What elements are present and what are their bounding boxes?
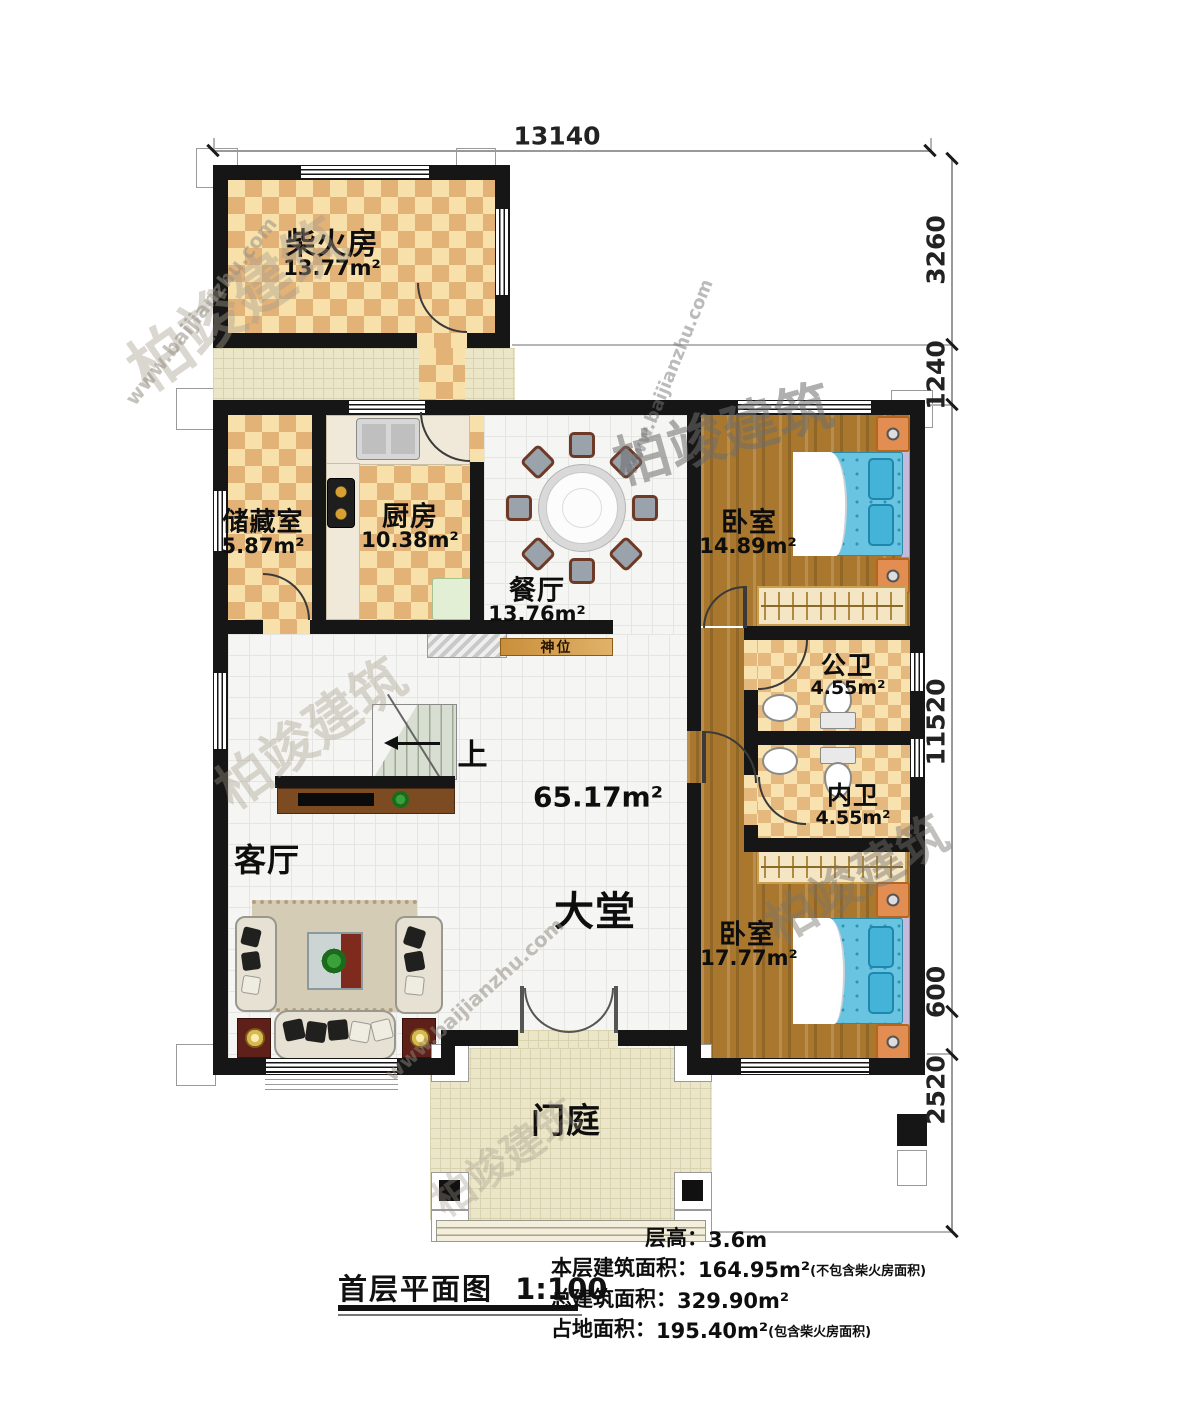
lamp-icon: [887, 428, 900, 441]
bathroom-sink: [762, 747, 798, 775]
wall: [744, 731, 924, 745]
wardrobe: [757, 586, 907, 626]
title-underline: [338, 1305, 578, 1311]
window: [348, 400, 426, 415]
sofa-pillow: [327, 1019, 349, 1041]
bed-pillow: [868, 504, 894, 546]
wall: [213, 620, 263, 634]
stat-line-footprint: 占地面积：195.40m²(包含柴火房面积): [551, 1313, 871, 1343]
floor-doorway-strip: [419, 348, 465, 400]
dimension-label-right-2: 11520: [922, 679, 951, 766]
extension-marker: [176, 388, 214, 430]
window: [300, 165, 430, 180]
wall: [455, 1030, 518, 1046]
floor-bath-public-door: [744, 640, 758, 690]
wall: [618, 1030, 690, 1046]
wall: [213, 333, 417, 348]
room-area-hall: 65.17m²: [533, 781, 663, 814]
room-area-bath-public: 4.55m²: [811, 677, 886, 699]
outdoor-steps: [265, 1075, 398, 1091]
stat-label: 本层建筑面积：: [551, 1252, 698, 1282]
dimension-label-top: 13140: [514, 122, 601, 151]
lamp-icon: [887, 894, 900, 907]
nightstand: [876, 416, 910, 452]
sofa-pillow: [403, 950, 425, 972]
door-leaf: [743, 586, 747, 628]
room-label-living: 客厅: [234, 835, 300, 881]
stat-value: 329.90m²: [677, 1289, 789, 1313]
dining-chair: [506, 495, 532, 521]
dimension-label-right-4: 2520: [922, 1055, 951, 1125]
bed-blanket: [793, 452, 847, 556]
window: [740, 1058, 870, 1075]
window: [495, 208, 510, 296]
stat-note: (包含柴火房面积): [768, 1321, 871, 1343]
wall: [744, 626, 925, 640]
stat-value: 3.6m: [708, 1228, 767, 1252]
stairs-arrow-head: [384, 736, 398, 750]
pillar-base: [897, 1150, 927, 1186]
dining-chair: [632, 495, 658, 521]
lamp-icon: [887, 570, 900, 583]
room-area-storage: 5.87m²: [222, 534, 305, 558]
sofa-pillow: [348, 1020, 371, 1043]
porch-column-core: [439, 1180, 460, 1201]
wardrobe-pole: [761, 866, 903, 868]
plan-title-text: 首层平面图: [338, 1272, 493, 1306]
wardrobe: [757, 850, 907, 884]
hall-counter: [427, 632, 507, 658]
stairs-up-label: 上: [458, 730, 489, 774]
tv-half-wall: [275, 776, 455, 788]
plant-icon: [320, 947, 348, 975]
door-leaf: [702, 731, 706, 783]
stat-line-height: 层高：3.6m: [645, 1222, 767, 1252]
wall: [687, 783, 701, 1060]
dining-table-inner: [562, 488, 602, 528]
entry-door-leaf: [520, 986, 524, 1033]
floor-corridor-door: [687, 731, 701, 783]
room-area-firewood: 13.77m²: [283, 256, 381, 280]
tv: [298, 793, 374, 806]
room-area-kitchen: 10.38m²: [361, 528, 459, 552]
wall: [441, 1030, 455, 1075]
room-area-bath-private: 4.55m²: [816, 807, 891, 829]
dining-chair: [569, 558, 595, 584]
sofa-pillow: [305, 1021, 328, 1044]
dining-chair: [569, 432, 595, 458]
wall: [744, 838, 924, 852]
shrine-label: 神位: [541, 637, 573, 657]
bed-pillow: [868, 972, 894, 1014]
plant-icon: [392, 791, 409, 808]
toilet-tank: [820, 712, 856, 729]
dimension-label-right-3: 600: [922, 966, 951, 1018]
dimension-label-right-1: 1240: [922, 340, 951, 410]
table-lamp-icon: [410, 1028, 430, 1048]
lamp-icon: [887, 1036, 900, 1049]
floor-storage-door: [263, 620, 310, 634]
extension-marker: [176, 1044, 216, 1086]
room-label-porch: 门庭: [531, 1094, 601, 1143]
porch-column-core: [682, 1180, 703, 1201]
wall: [687, 400, 701, 731]
sofa-pillow: [404, 975, 425, 996]
shrine-shelf: 神位: [500, 638, 613, 656]
floor-plan-page: 神位: [0, 0, 1200, 1426]
kitchen-sink: [356, 418, 420, 460]
stove: [327, 478, 355, 528]
stat-label: 层高：: [645, 1222, 708, 1252]
nightstand: [876, 1024, 910, 1060]
window: [213, 672, 228, 750]
room-area-bedroom2: 17.77m²: [700, 946, 798, 970]
bed-pillow: [868, 458, 894, 500]
wardrobe-pole: [761, 605, 903, 607]
stat-value: 195.40m²: [656, 1319, 768, 1343]
wall: [213, 165, 228, 348]
table-lamp-icon: [245, 1028, 265, 1048]
sofa-pillow: [282, 1018, 306, 1042]
room-area-bedroom1: 14.89m²: [699, 534, 797, 558]
wall: [312, 400, 326, 634]
nightstand: [876, 882, 910, 918]
room-area-dining: 13.76m²: [488, 602, 586, 626]
room-label-hall: 大堂: [554, 879, 636, 937]
sofa-pillow: [241, 951, 261, 971]
stat-note: (不包含柴火房面积): [810, 1260, 926, 1282]
window: [737, 400, 872, 415]
title-underline-thin: [338, 1314, 582, 1316]
floor-walkway: [213, 348, 515, 400]
stat-label: 占地面积：: [551, 1313, 656, 1343]
dimension-extension: [512, 344, 952, 346]
stat-value: 164.95m²: [698, 1258, 810, 1282]
dimension-line-right: [951, 158, 953, 1232]
stairs-arrow: [398, 742, 440, 745]
wall: [467, 333, 510, 348]
stat-line-total-area: 总建筑面积：329.90m²: [551, 1283, 789, 1313]
bed-blanket: [793, 918, 845, 1024]
stat-line-floor-area: 本层建筑面积：164.95m²(不包含柴火房面积): [551, 1252, 926, 1282]
room-label-storage: 储藏室: [222, 502, 303, 539]
bathroom-sink: [762, 694, 798, 722]
bed-pillow: [868, 926, 894, 968]
floor-doorway-strip: [417, 333, 467, 348]
entry-door-leaf: [614, 986, 618, 1033]
sofa-pillow: [241, 975, 262, 996]
stat-label: 总建筑面积：: [551, 1283, 677, 1313]
wall: [470, 462, 484, 620]
dimension-label-right-0: 3260: [922, 215, 951, 285]
floor-kitchen-door: [470, 415, 484, 462]
window: [265, 1058, 398, 1075]
